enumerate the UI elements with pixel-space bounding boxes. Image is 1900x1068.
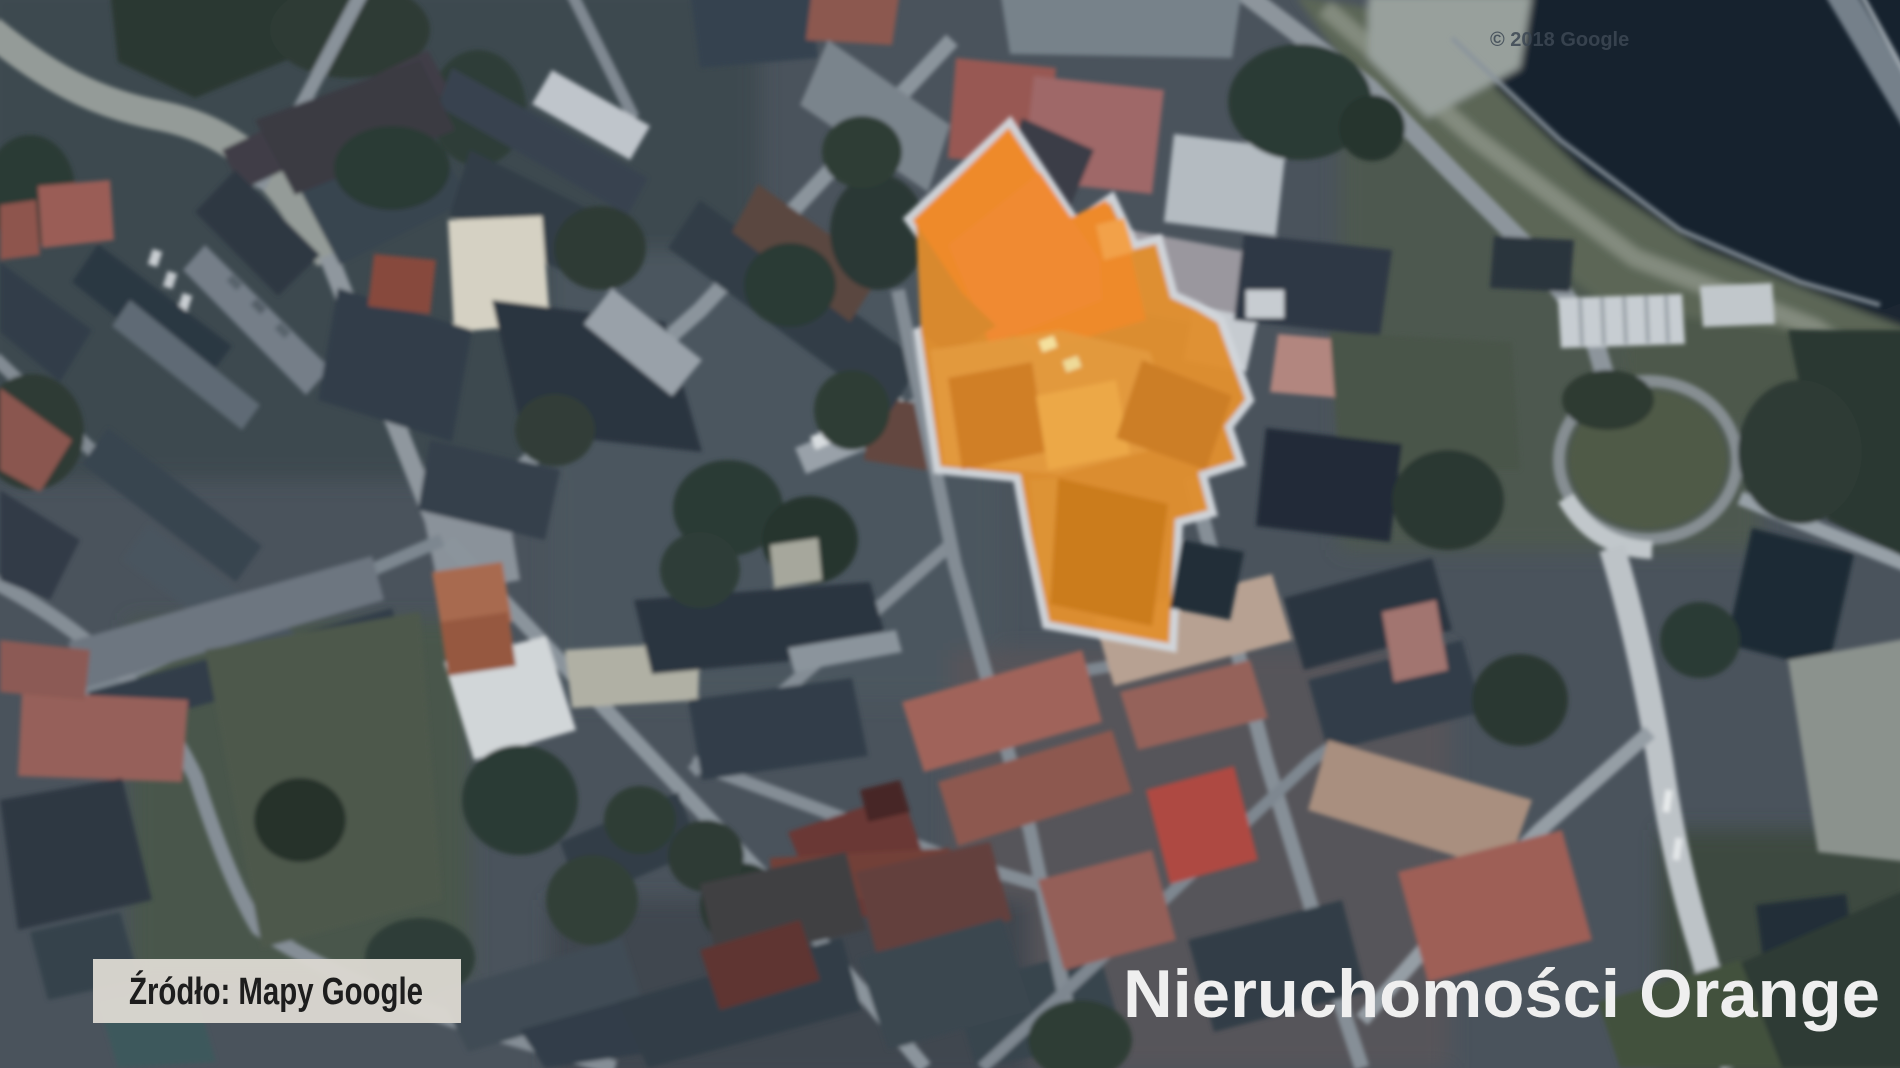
svg-text:Nieruchomości Orange: Nieruchomości Orange <box>1123 956 1880 1032</box>
svg-text:© 2018 Google: © 2018 Google <box>1490 29 1629 51</box>
svg-text:Źródło: Mapy Google: Źródło: Mapy Google <box>129 969 423 1013</box>
